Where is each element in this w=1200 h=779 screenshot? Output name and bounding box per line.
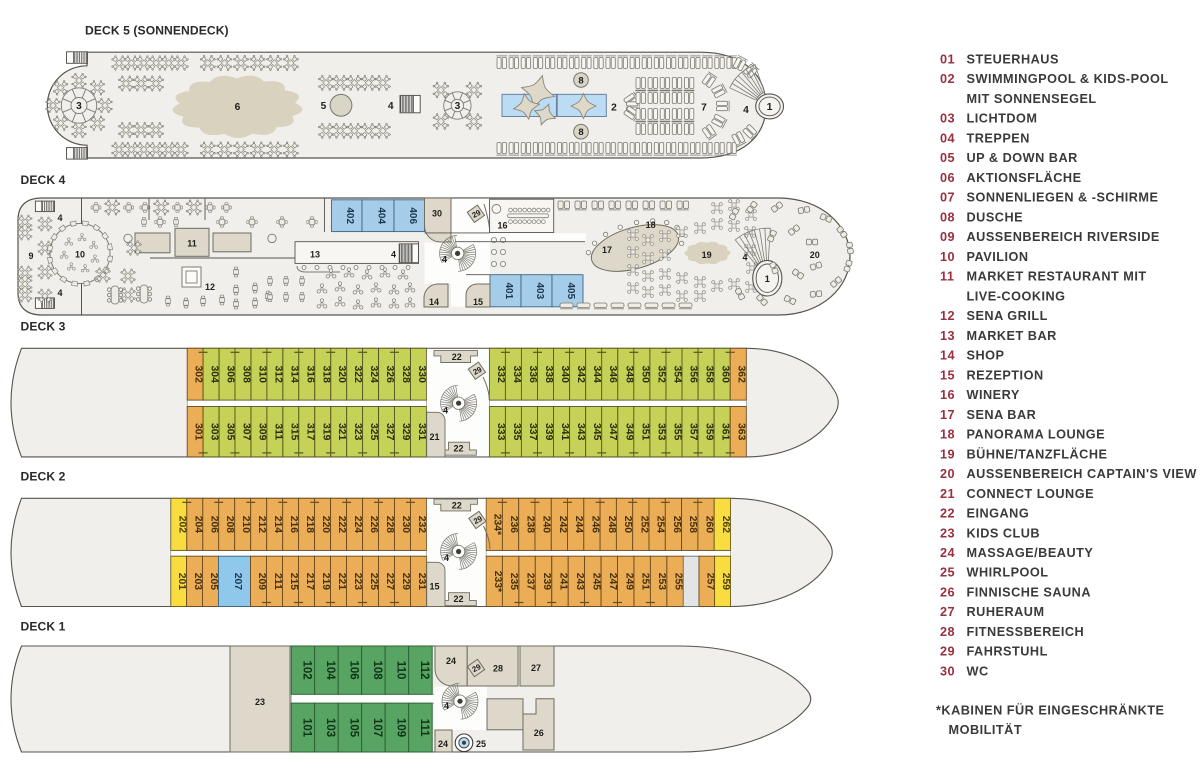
svg-text:AKTIONSFLÄCHE: AKTIONSFLÄCHE [967,170,1082,185]
svg-text:LICHTDOM: LICHTDOM [967,112,1038,126]
svg-text:308: 308 [241,366,252,384]
svg-text:310: 310 [257,366,268,384]
svg-text:LIVE-COOKING: LIVE-COOKING [967,289,1066,303]
svg-text:206: 206 [208,516,219,534]
svg-text:16: 16 [498,221,508,231]
svg-text:106: 106 [347,661,359,680]
svg-text:239: 239 [541,573,552,591]
svg-text:320: 320 [336,366,347,384]
svg-text:DECK 1: DECK 1 [21,620,66,634]
svg-text:252: 252 [638,516,649,534]
svg-text:332: 332 [495,366,506,384]
svg-text:FAHRSTUHL: FAHRSTUHL [967,645,1048,659]
svg-text:306: 306 [225,366,236,384]
svg-text:112: 112 [418,661,430,680]
svg-text:09: 09 [940,230,955,244]
svg-text:251: 251 [640,573,651,591]
svg-text:209: 209 [256,573,267,591]
svg-text:357: 357 [688,423,699,441]
svg-text:12: 12 [940,309,955,323]
svg-text:104: 104 [324,661,336,681]
svg-text:333: 333 [495,423,506,441]
svg-text:MARKET BAR: MARKET BAR [967,329,1057,343]
svg-text:338: 338 [543,366,554,384]
svg-text:23: 23 [255,697,265,707]
svg-text:BÜHNE/TANZFLÄCHE: BÜHNE/TANZFLÄCHE [967,446,1108,461]
svg-text:222: 222 [336,516,347,534]
svg-text:26: 26 [534,728,544,738]
svg-text:WC: WC [967,664,989,678]
svg-text:218: 218 [304,516,315,534]
svg-text:325: 325 [368,423,379,441]
svg-text:304: 304 [209,366,220,384]
svg-text:REZEPTION: REZEPTION [967,368,1044,382]
svg-text:339: 339 [543,423,554,441]
svg-text:06: 06 [940,171,955,185]
svg-text:225: 225 [368,573,379,591]
svg-text:05: 05 [940,151,955,165]
svg-text:358: 358 [704,366,715,384]
svg-text:353: 353 [655,423,666,441]
svg-text:08: 08 [940,210,955,224]
svg-text:UP & DOWN BAR: UP & DOWN BAR [967,151,1078,165]
svg-text:101: 101 [300,718,312,738]
svg-text:15: 15 [429,581,439,591]
svg-text:SHOP: SHOP [967,349,1005,363]
svg-text:SENA GRILL: SENA GRILL [967,309,1048,323]
svg-text:DECK 3: DECK 3 [21,320,66,334]
svg-text:258: 258 [687,516,698,534]
svg-text:27: 27 [531,663,541,673]
svg-text:202: 202 [176,516,187,534]
svg-text:2: 2 [611,103,617,114]
svg-text:9: 9 [28,251,33,261]
svg-text:307: 307 [241,423,252,441]
svg-text:105: 105 [347,718,359,738]
svg-text:RUHERAUM: RUHERAUM [967,605,1045,619]
svg-text:318: 318 [320,366,331,384]
svg-text:AUSSENBEREICH CAPTAIN'S VIEW: AUSSENBEREICH CAPTAIN'S VIEW [967,467,1197,481]
svg-text:215: 215 [288,573,299,591]
svg-text:22: 22 [453,443,463,453]
svg-text:18: 18 [646,220,656,230]
svg-text:207: 207 [232,573,243,591]
svg-text:352: 352 [655,366,666,384]
svg-text:04: 04 [940,132,955,146]
svg-text:311: 311 [272,423,283,440]
svg-text:SWIMMINGPOOL & KIDS-POOL: SWIMMINGPOOL & KIDS-POOL [967,72,1169,86]
svg-text:4: 4 [57,213,62,223]
svg-text:314: 314 [288,366,299,384]
svg-text:4: 4 [743,105,749,116]
svg-text:354: 354 [672,366,683,384]
svg-text:229: 229 [400,573,411,591]
svg-text:220: 220 [320,516,331,534]
svg-text:13: 13 [940,329,955,343]
svg-text:17: 17 [940,408,955,422]
svg-text:11: 11 [187,239,197,249]
svg-text:DECK 2: DECK 2 [21,470,66,484]
svg-text:3: 3 [455,101,461,112]
svg-text:210: 210 [240,516,251,534]
svg-text:241: 241 [558,573,569,591]
svg-text:335: 335 [511,423,522,441]
svg-text:103: 103 [324,718,336,737]
svg-text:16: 16 [940,388,955,402]
svg-text:22: 22 [452,501,462,511]
svg-text:253: 253 [656,573,667,591]
svg-text:201: 201 [176,573,187,591]
svg-text:403: 403 [534,282,545,299]
svg-text:359: 359 [704,423,715,441]
svg-text:216: 216 [288,516,299,534]
svg-text:4: 4 [742,253,747,263]
svg-text:14: 14 [940,349,955,363]
svg-text:250: 250 [622,516,633,534]
svg-text:226: 226 [368,516,379,534]
svg-text:WINERY: WINERY [967,388,1020,402]
svg-text:217: 217 [304,573,315,591]
svg-text:10: 10 [940,250,955,264]
svg-text:224: 224 [352,516,363,534]
svg-text:4: 4 [388,101,394,112]
svg-text:102: 102 [300,661,312,680]
svg-text:211: 211 [272,573,283,590]
svg-text:342: 342 [575,366,586,384]
svg-text:347: 347 [607,423,618,441]
svg-text:8: 8 [578,76,583,87]
svg-text:259: 259 [720,573,731,591]
svg-text:4: 4 [444,701,449,711]
svg-text:109: 109 [394,718,406,737]
svg-text:219: 219 [320,573,331,591]
svg-text:01: 01 [940,53,955,67]
svg-text:343: 343 [575,423,586,441]
svg-text:315: 315 [288,423,299,441]
svg-text:256: 256 [671,516,682,534]
svg-text:26: 26 [940,586,955,600]
svg-text:232: 232 [416,516,427,534]
svg-text:SONNENLIEGEN & -SCHIRME: SONNENLIEGEN & -SCHIRME [967,191,1159,205]
svg-text:25: 25 [476,739,486,749]
svg-text:13: 13 [310,250,320,260]
svg-text:242: 242 [557,516,568,534]
svg-text:PAVILION: PAVILION [967,250,1029,264]
svg-text:348: 348 [623,366,634,384]
svg-text:340: 340 [559,366,570,384]
svg-text:6: 6 [235,102,241,113]
svg-text:404: 404 [376,207,387,224]
svg-text:7: 7 [701,103,707,114]
svg-text:14: 14 [429,297,439,307]
svg-text:243: 243 [574,573,585,591]
svg-text:TREPPEN: TREPPEN [967,132,1030,146]
svg-text:18: 18 [940,428,955,442]
svg-text:305: 305 [225,423,236,441]
svg-text:351: 351 [639,423,650,441]
svg-text:230: 230 [400,516,411,534]
svg-text:205: 205 [208,573,219,591]
svg-text:24: 24 [940,546,955,560]
svg-text:28: 28 [493,664,503,674]
svg-text:328: 328 [400,366,411,384]
svg-text:20: 20 [810,250,820,260]
svg-text:22: 22 [453,594,463,604]
svg-text:301: 301 [193,423,204,441]
svg-text:334: 334 [511,366,522,384]
svg-text:1: 1 [765,274,771,285]
svg-text:MIT SONNENSEGEL: MIT SONNENSEGEL [967,92,1097,106]
svg-text:204: 204 [192,516,203,534]
svg-text:DECK 4: DECK 4 [21,173,66,187]
svg-text:249: 249 [623,573,634,591]
svg-text:8: 8 [578,127,583,138]
svg-text:235: 235 [508,573,519,591]
svg-text:303: 303 [209,423,220,441]
svg-text:337: 337 [527,423,538,441]
svg-text:SENA BAR: SENA BAR [967,408,1037,422]
svg-text:EINGANG: EINGANG [967,507,1030,521]
svg-text:331: 331 [416,423,427,441]
svg-text:5: 5 [321,101,327,112]
svg-text:322: 322 [352,366,363,384]
svg-text:212: 212 [256,516,267,534]
svg-text:336: 336 [527,366,538,384]
svg-text:238: 238 [524,516,535,534]
svg-text:255: 255 [673,573,684,591]
svg-text:24: 24 [446,656,456,666]
svg-text:STEUERHAUS: STEUERHAUS [967,53,1059,67]
svg-text:208: 208 [224,516,235,534]
svg-text:29: 29 [940,645,955,659]
svg-text:10: 10 [75,250,85,260]
svg-text:FINNISCHE SAUNA: FINNISCHE SAUNA [967,586,1092,600]
svg-text:346: 346 [607,366,618,384]
svg-text:321: 321 [336,423,347,441]
svg-text:260: 260 [704,516,715,534]
svg-text:254: 254 [655,516,666,534]
svg-text:402: 402 [344,207,355,224]
svg-text:MARKET RESTAURANT MIT: MARKET RESTAURANT MIT [967,270,1147,284]
svg-text:355: 355 [672,423,683,441]
svg-text:28: 28 [940,625,955,639]
svg-text:234*: 234* [492,514,503,536]
svg-text:233*: 233* [492,571,503,593]
svg-text:231: 231 [416,573,427,591]
svg-text:17: 17 [602,245,612,255]
svg-text:316: 316 [304,366,315,384]
svg-text:361: 361 [720,423,731,441]
svg-text:03: 03 [940,112,955,126]
svg-text:323: 323 [352,423,363,441]
svg-text:3: 3 [76,101,82,112]
svg-text:1: 1 [767,101,773,113]
svg-text:349: 349 [623,423,634,441]
svg-text:4: 4 [443,406,448,416]
svg-text:401: 401 [503,282,514,299]
svg-text:4: 4 [391,250,396,260]
svg-text:02: 02 [940,72,955,86]
svg-text:244: 244 [573,516,584,534]
svg-text:27: 27 [940,605,955,619]
svg-text:WHIRLPOOL: WHIRLPOOL [967,566,1049,580]
svg-text:341: 341 [559,423,570,441]
svg-text:108: 108 [371,661,383,681]
svg-text:362: 362 [736,366,747,384]
svg-text:DECK 5 (SONNENDECK): DECK 5 (SONNENDECK) [85,24,229,38]
svg-text:317: 317 [304,423,315,441]
svg-text:324: 324 [368,366,379,384]
svg-text:405: 405 [565,282,576,299]
svg-text:237: 237 [525,573,536,591]
svg-text:30: 30 [940,664,955,678]
svg-text:07: 07 [940,191,955,205]
svg-text:257: 257 [704,573,715,591]
svg-text:21: 21 [940,487,955,501]
svg-text:19: 19 [702,250,712,260]
svg-text:107: 107 [371,718,383,737]
svg-text:344: 344 [591,366,602,384]
svg-text:*KABINEN FÜR EINGESCHRÄNKTE: *KABINEN FÜR EINGESCHRÄNKTE [936,702,1165,717]
svg-text:110: 110 [394,661,406,680]
svg-text:15: 15 [473,297,483,307]
svg-text:247: 247 [607,573,618,591]
svg-text:20: 20 [940,467,955,481]
svg-text:PANORAMA LOUNGE: PANORAMA LOUNGE [967,428,1106,442]
svg-text:319: 319 [320,423,331,441]
svg-text:309: 309 [257,423,268,441]
svg-text:19: 19 [940,447,955,461]
svg-text:246: 246 [590,516,601,534]
svg-text:11: 11 [940,270,954,284]
svg-text:356: 356 [688,366,699,384]
svg-text:330: 330 [416,366,427,384]
svg-text:262: 262 [720,516,731,534]
svg-text:KIDS CLUB: KIDS CLUB [967,526,1041,540]
svg-text:245: 245 [590,573,601,591]
svg-text:30: 30 [432,209,442,219]
svg-text:22: 22 [452,352,462,362]
svg-text:FITNESSBEREICH: FITNESSBEREICH [967,625,1085,639]
svg-text:MASSAGE/BEAUTY: MASSAGE/BEAUTY [967,546,1094,560]
svg-text:15: 15 [940,368,955,382]
svg-text:25: 25 [940,566,955,580]
svg-text:227: 227 [384,573,395,591]
svg-text:24: 24 [438,739,448,749]
svg-text:221: 221 [336,573,347,591]
svg-text:23: 23 [940,526,955,540]
svg-text:240: 240 [541,516,552,534]
svg-text:4: 4 [442,255,447,265]
svg-text:228: 228 [384,516,395,534]
svg-text:406: 406 [407,207,418,224]
svg-text:4: 4 [444,553,449,563]
svg-text:363: 363 [736,423,747,441]
svg-text:223: 223 [352,573,363,591]
svg-text:21: 21 [429,432,439,442]
svg-text:203: 203 [192,573,203,591]
svg-text:12: 12 [205,282,215,292]
svg-text:22: 22 [940,507,955,521]
svg-text:236: 236 [508,516,519,534]
svg-text:MOBILITÄT: MOBILITÄT [949,722,1023,737]
svg-text:350: 350 [639,366,650,384]
svg-text:302: 302 [193,366,204,384]
svg-text:327: 327 [384,423,395,441]
svg-text:312: 312 [272,366,283,384]
svg-text:329: 329 [400,423,411,441]
svg-text:4: 4 [57,288,62,298]
svg-text:DUSCHE: DUSCHE [967,210,1024,224]
svg-text:111: 111 [418,719,430,738]
svg-text:248: 248 [606,516,617,534]
svg-text:AUSSENBEREICH RIVERSIDE: AUSSENBEREICH RIVERSIDE [967,230,1160,244]
svg-text:326: 326 [384,366,395,384]
svg-text:214: 214 [272,516,283,534]
svg-text:CONNECT LOUNGE: CONNECT LOUNGE [967,487,1095,501]
svg-text:345: 345 [591,423,602,441]
svg-text:360: 360 [720,366,731,384]
